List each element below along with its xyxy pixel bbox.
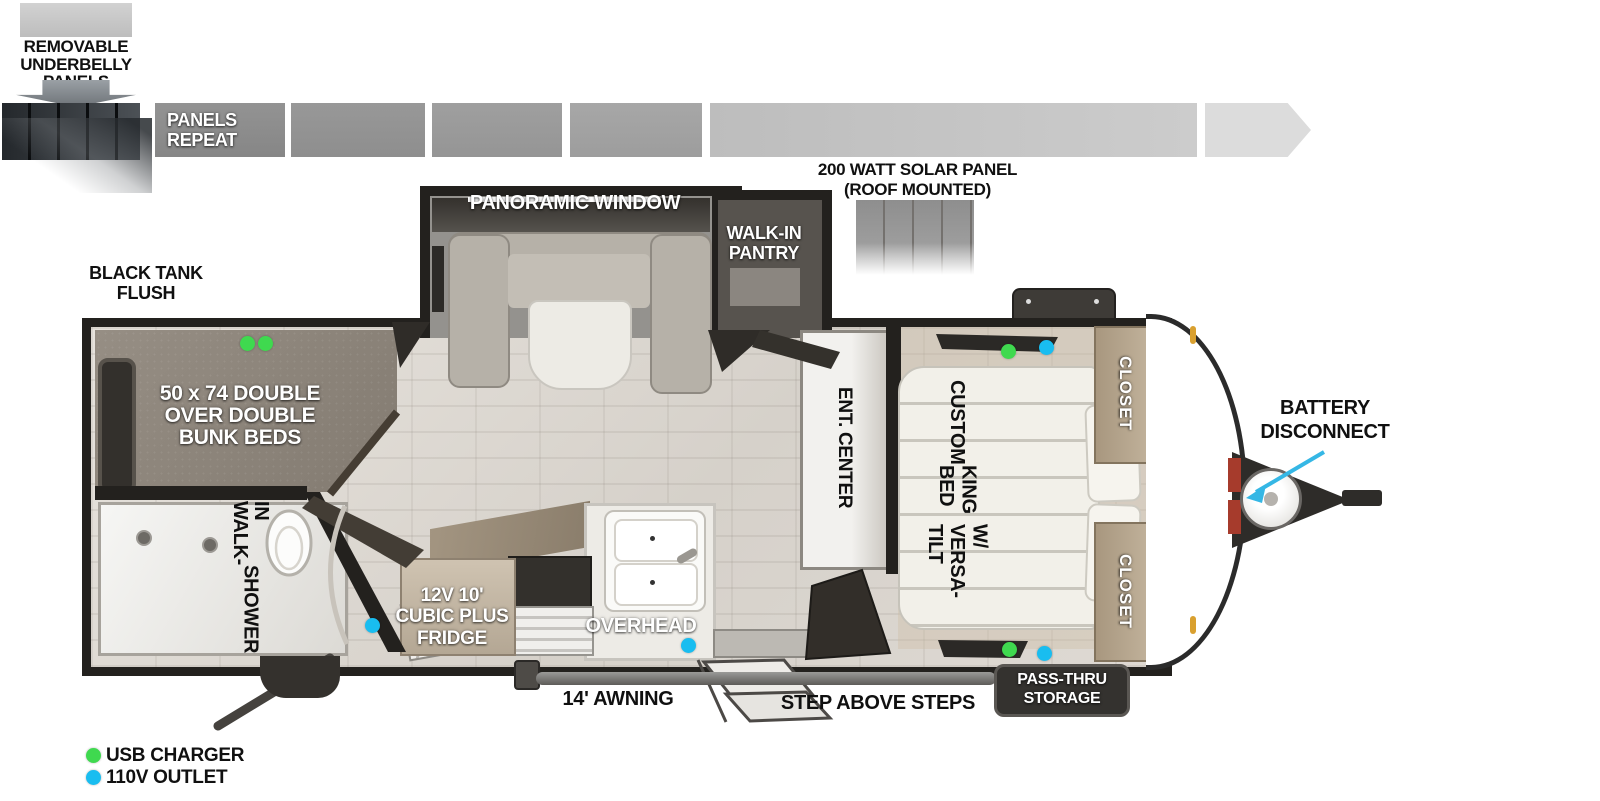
king-bed-line: W/ VERSA-TILT bbox=[923, 524, 990, 612]
battery-disconnect-label: BATTERY DISCONNECT bbox=[1240, 396, 1410, 444]
shower-head bbox=[136, 530, 152, 546]
ent-center-label: ENT. CENTER bbox=[818, 348, 870, 548]
propane-tank-icon bbox=[1240, 468, 1302, 530]
fridge-line: FRIDGE bbox=[372, 628, 532, 649]
legend-outlet-dot bbox=[86, 770, 101, 785]
bathroom-wall bbox=[95, 486, 307, 500]
propane-valve bbox=[1264, 492, 1278, 506]
bunk-line: BUNK BEDS bbox=[120, 427, 360, 449]
bunk-window bbox=[98, 358, 136, 494]
shower-line: SHOWER bbox=[240, 565, 261, 653]
pass-thru-line: PASS-THRU bbox=[997, 670, 1127, 689]
outlet-110v-dot bbox=[365, 618, 380, 633]
panels-repeat-line: REPEAT bbox=[167, 130, 285, 150]
dinette-sofa-right-arm bbox=[650, 234, 712, 394]
battery-line: DISCONNECT bbox=[1240, 420, 1410, 444]
king-bed-label: CUSTOM KING BED W/ VERSA-TILT bbox=[918, 380, 996, 612]
pass-thru-line: STORAGE bbox=[997, 689, 1127, 708]
panel-2 bbox=[291, 103, 425, 157]
bunk-line: OVER DOUBLE bbox=[120, 405, 360, 427]
bunk-line: 50 x 74 DOUBLE bbox=[120, 383, 360, 405]
black-tank-flush-label: BLACK TANK FLUSH bbox=[80, 264, 212, 304]
awning-label: 14' AWNING bbox=[538, 688, 698, 711]
hitch-tongue bbox=[1342, 490, 1382, 506]
battery-line: BATTERY bbox=[1240, 396, 1410, 420]
battery-box bbox=[1228, 500, 1241, 534]
outlet-110v-dot bbox=[1039, 340, 1054, 355]
fridge-line: CUBIC PLUS bbox=[372, 606, 532, 627]
steps-label: STEP ABOVE STEPS bbox=[768, 692, 988, 715]
pantry-line: WALK-IN bbox=[716, 224, 812, 244]
sink-basin bbox=[614, 563, 698, 606]
sink-drain bbox=[650, 580, 655, 585]
dinette-table bbox=[528, 300, 632, 390]
panel-arrow-icon bbox=[1205, 103, 1311, 157]
front-cap bbox=[1146, 314, 1247, 670]
outlet-110v-dot bbox=[681, 638, 696, 653]
pantry-shelf bbox=[730, 268, 800, 306]
walk-in-shower-label: WALK-IN SHOWER bbox=[222, 508, 278, 646]
dinette-sofa-left-arm bbox=[448, 234, 510, 388]
shower-line: WALK-IN bbox=[229, 501, 271, 565]
btf-line: FLUSH bbox=[80, 284, 212, 304]
legend-outlet-label: 110V OUTLET bbox=[106, 767, 227, 789]
bunk-bed-label: 50 x 74 DOUBLE OVER DOUBLE BUNK BEDS bbox=[120, 383, 360, 449]
marker-light bbox=[1190, 326, 1196, 344]
panel-fade bbox=[2, 118, 152, 193]
storage-compartment bbox=[260, 656, 340, 698]
usb-charger-dot bbox=[240, 336, 255, 351]
king-bed-line: CUSTOM bbox=[946, 380, 968, 465]
underbelly-line: UNDERBELLY bbox=[8, 56, 144, 74]
up-arrow-icon bbox=[20, 3, 132, 37]
pass-thru-badge: PASS-THRU STORAGE bbox=[994, 664, 1130, 717]
fridge-line: 12V 10' bbox=[372, 585, 532, 606]
sink-drain bbox=[650, 536, 655, 541]
solar-line: 200 WATT SOLAR PANEL bbox=[795, 160, 1040, 180]
legend-usb-dot bbox=[86, 748, 101, 763]
underbelly-line: REMOVABLE bbox=[8, 38, 144, 56]
panels-repeat-label: PANELS REPEAT bbox=[155, 103, 285, 150]
overhead-label: OVERHEAD bbox=[575, 615, 707, 638]
usb-charger-dot bbox=[258, 336, 273, 351]
usb-charger-dot bbox=[1001, 344, 1016, 359]
panel-repeat: PANELS REPEAT bbox=[155, 103, 285, 157]
legend-usb-label: USB CHARGER bbox=[106, 745, 244, 767]
panel-5 bbox=[710, 103, 1197, 157]
panel-3 bbox=[432, 103, 562, 157]
outlet-110v-dot bbox=[1037, 646, 1052, 661]
king-bed-line: KING BED bbox=[935, 465, 980, 524]
closet-bottom-label: CLOSET bbox=[1112, 528, 1138, 654]
rack-dot bbox=[1026, 299, 1031, 304]
panoramic-window-label: PANORAMIC WINDOW bbox=[445, 192, 705, 215]
marker-light bbox=[1190, 616, 1196, 634]
btf-line: BLACK TANK bbox=[80, 264, 212, 284]
solar-panel-graphic bbox=[856, 200, 974, 278]
usb-charger-dot bbox=[1002, 642, 1017, 657]
shower-head bbox=[202, 537, 218, 553]
slide-window bbox=[432, 246, 444, 312]
awning-bar bbox=[536, 672, 996, 685]
panels-repeat-line: PANELS bbox=[167, 110, 285, 130]
walk-in-pantry-label: WALK-IN PANTRY bbox=[716, 224, 812, 264]
fridge-label: 12V 10' CUBIC PLUS FRIDGE bbox=[372, 585, 532, 649]
battery-box bbox=[1228, 458, 1241, 492]
closet-top-label: CLOSET bbox=[1112, 330, 1138, 456]
rv-floorplan-diagram: REMOVABLE UNDERBELLY PANELS PANELS REPEA… bbox=[0, 0, 1600, 801]
kitchen-sink bbox=[604, 510, 706, 612]
pantry-line: PANTRY bbox=[716, 244, 812, 264]
walk-in-pantry bbox=[712, 190, 832, 338]
panel-4 bbox=[570, 103, 702, 157]
rack-dot bbox=[1094, 299, 1099, 304]
